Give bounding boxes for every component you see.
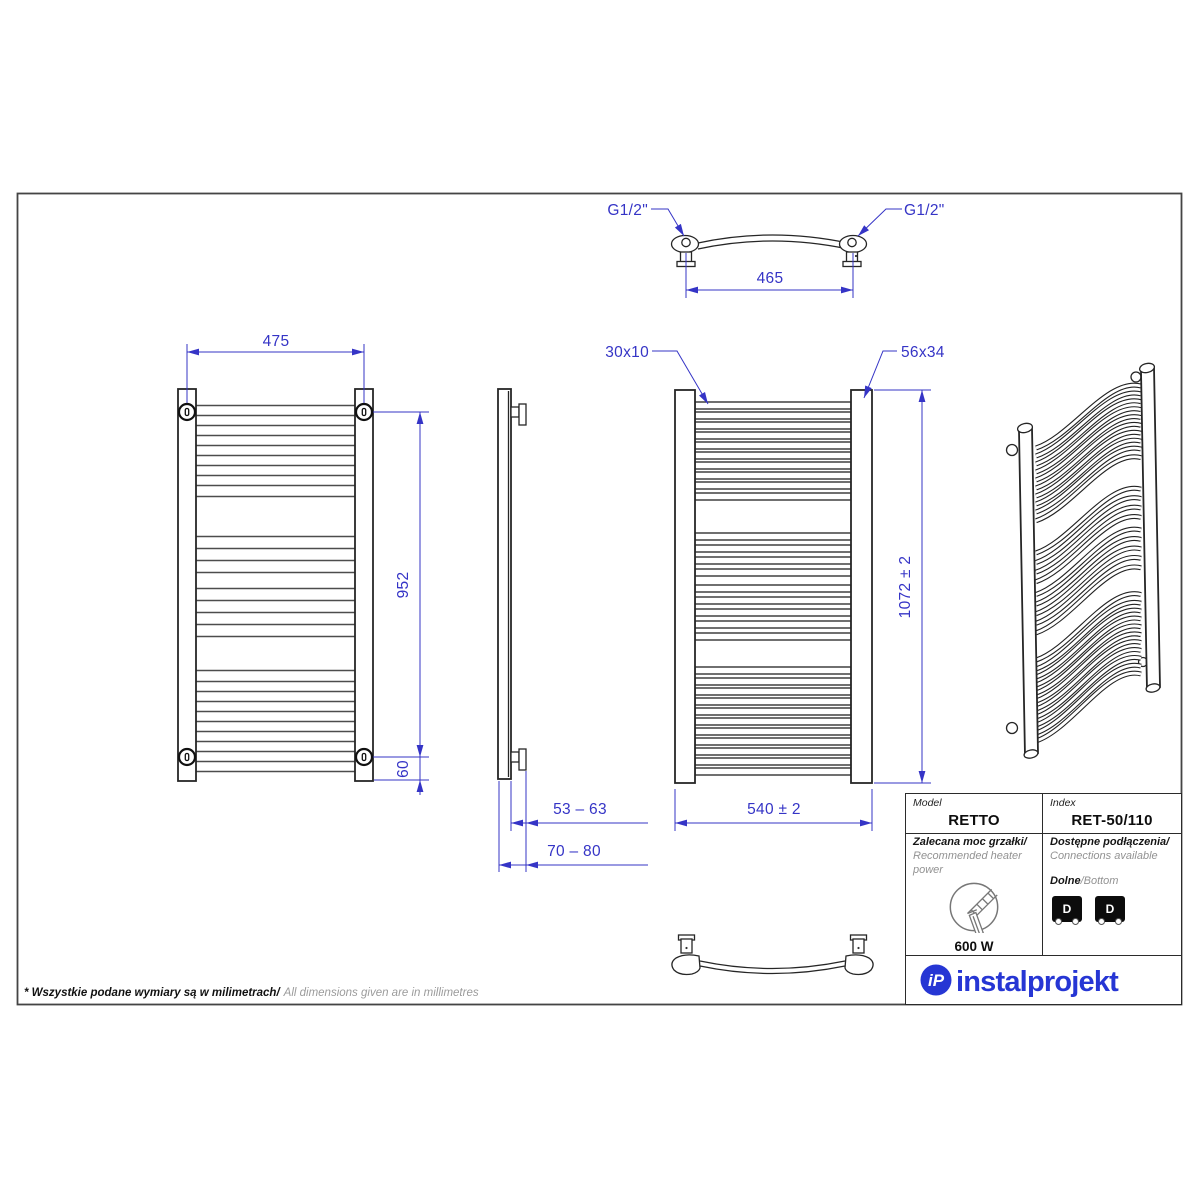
dimension-mount-height: 952 — [395, 572, 412, 599]
logo-icon-letters: iP — [927, 971, 944, 990]
connections-label-en: Connections available — [1050, 850, 1174, 864]
side-bottom-bracket — [519, 749, 526, 770]
dimension-thread-left: G1/2" — [607, 202, 648, 219]
rung — [695, 442, 851, 449]
rung — [695, 768, 851, 775]
model-cell: Model RETTO — [906, 794, 1043, 833]
top-view: G1/2" G1/2" 465 — [607, 202, 944, 298]
rung — [695, 493, 851, 500]
technical-drawing-sheet: G1/2" G1/2" 465 475 — [0, 0, 1200, 1200]
rung — [695, 718, 851, 725]
rung — [695, 758, 851, 765]
connection-dot-icon — [1098, 918, 1105, 925]
rung — [695, 482, 851, 489]
rung — [695, 452, 851, 459]
power-value: 600 W — [913, 939, 1035, 954]
bottom-view — [672, 935, 873, 975]
index-label: Index — [1050, 797, 1174, 809]
rung — [695, 412, 851, 419]
power-label-en: Recommended heater power — [913, 850, 1035, 878]
rung — [695, 688, 851, 695]
bottom-connection-icon: D — [1052, 896, 1082, 922]
model-label: Model — [913, 797, 1035, 809]
connections-label-pl: Dostępne podłączenia/ — [1050, 836, 1174, 850]
connection-icon-letter: D — [1063, 902, 1072, 916]
rung — [695, 748, 851, 755]
spec-table: Model RETTO Index RET-50/110 Zalecana mo… — [905, 793, 1182, 1005]
power-label-pl: Zalecana moc grzałki/ — [913, 836, 1035, 850]
rung — [695, 422, 851, 429]
rung — [695, 609, 851, 616]
dimension-bottom-offset: 60 — [395, 760, 412, 778]
spec-table-detail-row: Zalecana moc grzałki/ Recommended heater… — [906, 833, 1181, 956]
index-value: RET-50/110 — [1050, 812, 1174, 829]
dimension-wall-distance-max: 70 – 80 — [547, 843, 601, 860]
footnote-en: All dimensions given are in millimetres — [284, 987, 479, 999]
side-top-bracket — [519, 404, 526, 425]
rung — [695, 569, 851, 576]
rung — [695, 678, 851, 685]
detailed-left-rail — [675, 390, 695, 783]
dimension-mount-width: 475 — [263, 333, 290, 350]
rung — [695, 432, 851, 439]
connection-icons: D D — [1052, 896, 1174, 922]
rung — [695, 667, 851, 674]
dimension-thread-right: G1/2" — [904, 202, 945, 219]
rung — [695, 545, 851, 552]
dimension-rail-profile: 56x34 — [901, 344, 945, 361]
rung — [695, 621, 851, 628]
connections-cell: Dostępne podłączenia/ Connections availa… — [1043, 833, 1181, 955]
rung — [695, 472, 851, 479]
logo-wordmark: instalprojekt — [956, 966, 1119, 998]
side-view: 53 – 63 70 – 80 — [498, 389, 648, 872]
dimension-total-height: 1072 ± 2 — [897, 556, 914, 619]
rung — [695, 728, 851, 735]
instalprojekt-logo: iP instalprojekt — [918, 960, 1170, 1000]
spec-table-header-row: Model RETTO Index RET-50/110 — [906, 794, 1181, 834]
footnote: * Wszystkie podane wymiary są w milimetr… — [24, 987, 479, 999]
connection-type-pl: Dolne — [1050, 875, 1081, 887]
dimension-wall-distance-min: 53 – 63 — [553, 801, 607, 818]
rung — [695, 462, 851, 469]
logo-row: iP instalprojekt — [906, 955, 1181, 1004]
perspective-view — [1007, 362, 1161, 759]
front-left-rail — [178, 389, 196, 781]
connection-type-en: /Bottom — [1081, 875, 1119, 887]
heater-power-cell: Zalecana moc grzałki/ Recommended heater… — [906, 833, 1043, 955]
rung — [695, 402, 851, 409]
perspective-left-rail — [1019, 428, 1038, 756]
connection-type: Dolne/Bottom — [1050, 875, 1174, 889]
dimension-tube-profile: 30x10 — [605, 344, 649, 361]
connection-dot-icon — [1055, 918, 1062, 925]
heater-element-icon — [948, 881, 1000, 933]
front-view-detailed-rungs — [695, 402, 851, 775]
rung — [695, 597, 851, 604]
index-cell: Index RET-50/110 — [1043, 794, 1181, 833]
rung — [695, 557, 851, 564]
bottom-connection-icon: D — [1095, 896, 1125, 922]
connection-icon-letter: D — [1106, 902, 1115, 916]
rung — [695, 633, 851, 640]
rung — [695, 708, 851, 715]
front-view: 475 952 60 — [178, 333, 429, 795]
rung — [695, 698, 851, 705]
front-view-rungs — [197, 406, 355, 772]
bottom-right-collector — [845, 955, 873, 975]
bottom-left-collector — [672, 955, 700, 975]
connection-dot-icon — [1072, 918, 1079, 925]
dimension-total-width: 540 ± 2 — [747, 801, 801, 818]
footnote-pl: * Wszystkie podane wymiary są w milimetr… — [24, 987, 280, 999]
rung — [695, 738, 851, 745]
connection-dot-icon — [1115, 918, 1122, 925]
perspective-right-rail — [1141, 367, 1160, 690]
dimension-connection-spacing: 465 — [757, 270, 784, 287]
drawing-svg: G1/2" G1/2" 465 475 — [0, 0, 1200, 1200]
front-right-rail — [355, 389, 373, 781]
perspective-rungs — [1036, 385, 1141, 741]
model-value: RETTO — [913, 812, 1035, 829]
detailed-right-rail — [851, 390, 872, 783]
rung — [695, 585, 851, 592]
front-view-detailed: 30x10 56x34 1072 ± 2 540 ± 2 — [605, 344, 945, 831]
rung — [695, 533, 851, 540]
